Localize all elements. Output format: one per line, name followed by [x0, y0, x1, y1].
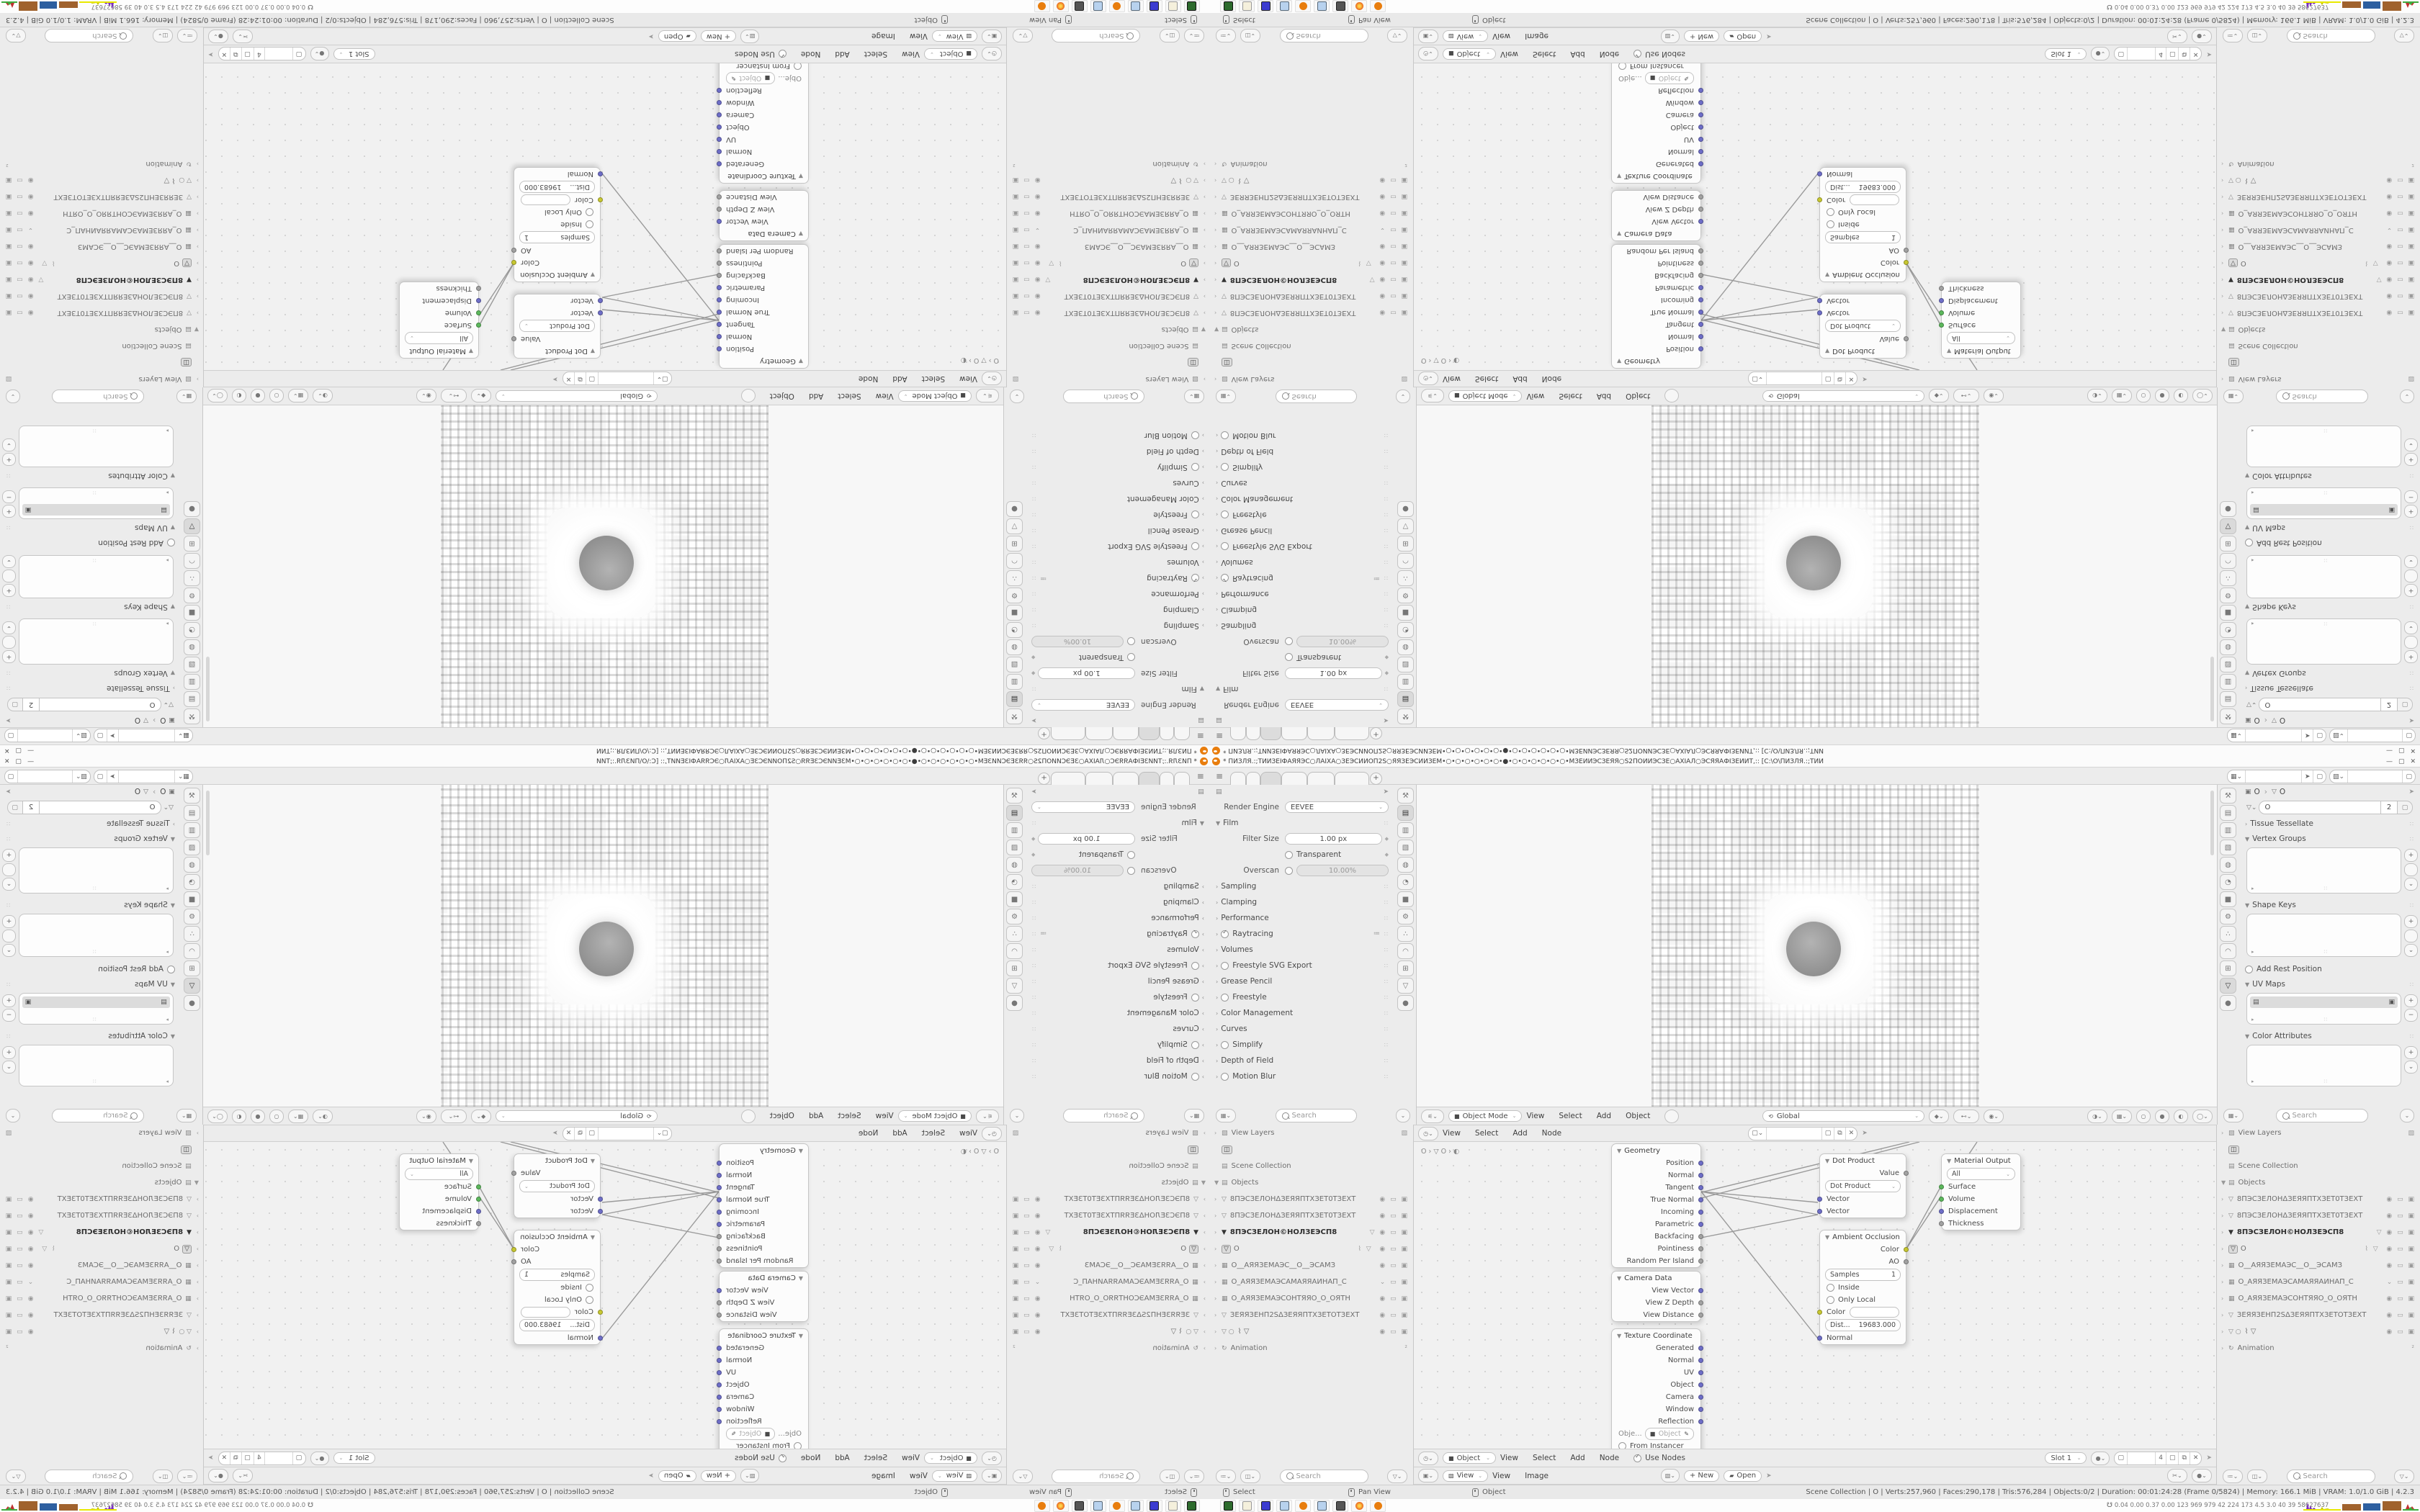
pin-icon[interactable]: ➤: [648, 33, 654, 40]
outliner-filter-dropdown[interactable]: ▽⌄: [1013, 30, 1033, 43]
section-depth-of-field[interactable]: ›Depth of Field∷: [1210, 444, 1394, 459]
properties-editor-type-button[interactable]: ▦⌄: [2223, 390, 2244, 403]
outliner-display-mode-button[interactable]: ≔⌄: [177, 30, 197, 43]
taskbar-monitor-icon[interactable]: [1332, 1500, 1348, 1512]
workspace-tab-6[interactable]: [1335, 726, 1369, 740]
menu-add[interactable]: Add: [835, 50, 849, 58]
socket-tangent[interactable]: Tangent: [720, 318, 808, 330]
socket-object[interactable]: Object: [1612, 121, 1700, 133]
tab-object-icon[interactable]: ■: [1006, 605, 1023, 621]
viewport-sidebar-tab[interactable]: [206, 791, 210, 855]
outliner-scene-collection-row[interactable]: ▤Scene Collection: [2217, 338, 2420, 354]
tab-particles-icon[interactable]: ∴: [2220, 926, 2236, 942]
outliner-objects-row[interactable]: ▼▤Objects: [0, 1174, 203, 1191]
outliner-item[interactable]: ›▽8ПЭСЗЕЛОНΔЗЕЯЯПТХЗЕТ0ТЗЕХТ◉ ▭ ▣: [0, 1207, 203, 1224]
tab-data-icon[interactable]: ▽: [184, 978, 200, 994]
inside-checkbox[interactable]: [1827, 1284, 1834, 1292]
socket-normal[interactable]: Normal: [1612, 145, 1700, 158]
shading-material-icon[interactable]: ◐: [232, 1110, 246, 1123]
minimize-button[interactable]: —: [27, 747, 34, 755]
workspace-tab-4[interactable]: [1281, 772, 1307, 786]
color-attribute-specials-button[interactable]: ⌄: [2, 438, 16, 451]
menu-view[interactable]: View: [1443, 374, 1461, 383]
close-button[interactable]: ✕: [2410, 758, 2416, 765]
overlays-icon[interactable]: ◑⌄: [2087, 1110, 2107, 1123]
outliner-objects-row[interactable]: ▼▤Objects: [1210, 321, 1413, 338]
material-users-count[interactable]: 4: [254, 1452, 264, 1464]
uv-map-item[interactable]: ▤ ▣: [2250, 504, 2398, 516]
viewport-sidebar-tab[interactable]: [2210, 657, 2214, 721]
scene-browse-icon[interactable]: ▦⌄: [174, 729, 192, 742]
section-raytracing[interactable]: ›Raytracing≔∷: [1210, 926, 1394, 942]
tab-scene-icon[interactable]: ◍: [184, 857, 200, 873]
vertex-group-add-button[interactable]: +: [2404, 650, 2418, 663]
snapping-icon[interactable]: ◆⌄: [471, 390, 491, 403]
outliner-scene-collection-row[interactable]: ▤Scene Collection: [1210, 338, 1413, 354]
tab-tool-icon[interactable]: ⚒: [2220, 788, 2236, 804]
overscan-field[interactable]: 10.00%: [1031, 865, 1124, 876]
mesh-browse-icon[interactable]: ▽⌄: [163, 701, 174, 708]
shader-node-editor[interactable]: O › ▽ O › ◐ ▼Geometry Position Normal Ta…: [204, 1142, 1006, 1449]
properties-search[interactable]: Search: [1276, 1109, 1357, 1122]
scene-selector[interactable]: ▦⌄ ➤ ▢: [94, 770, 193, 783]
tab-modifiers-icon[interactable]: ⚙: [1006, 909, 1023, 924]
properties-options-button[interactable]: ⌄: [1396, 390, 1410, 403]
material-id-block[interactable]: ▢ 4 ▢ ⧉ ✕: [2114, 48, 2202, 61]
only-local-checkbox[interactable]: [586, 1296, 593, 1304]
fake-user-shield-icon[interactable]: ▢: [586, 373, 599, 385]
taskbar-calculator2-icon[interactable]: [1314, 1, 1330, 13]
socket-thickness[interactable]: Thickness: [1942, 1218, 2020, 1230]
material-selector[interactable]: ▢⌄ ▢ ⧉ ✕: [1748, 372, 1857, 386]
socket-thickness[interactable]: Thickness: [400, 1218, 478, 1230]
color-attribute-add-button[interactable]: +: [2, 453, 16, 466]
app-menu-icon[interactable]: ≡: [1197, 731, 1204, 741]
material-selector[interactable]: ▢⌄ ▢ ⧉ ✕: [1748, 1127, 1857, 1140]
transparent-checkbox[interactable]: [1285, 851, 1293, 859]
maximize-button[interactable]: ▢: [2398, 758, 2405, 765]
editor-type-icon[interactable]: ◷⌄: [1418, 1127, 1438, 1140]
shape-key-specials-button[interactable]: ⌄: [2404, 555, 2418, 568]
socket-pointiness[interactable]: Pointiness: [720, 1243, 808, 1255]
tab-viewlayer-icon[interactable]: ▧: [1006, 840, 1023, 855]
outliner-item[interactable]: ›▽ЗЕЯЯЗЕНП2SΔЗЕЯЯПТХЗЕТОТЗЕХТ◉ ▭ ▣: [0, 1307, 203, 1323]
overlays-icon[interactable]: ◑⌄: [313, 390, 333, 403]
proportional-edit-icon[interactable]: ⊷⌄: [441, 1110, 467, 1123]
tab-scene-icon[interactable]: ◍: [184, 639, 200, 655]
transparent-checkbox[interactable]: [1127, 654, 1135, 662]
shader-node-editor[interactable]: O › ▽ O › ◐ ▼Geometry Position Normal Ta…: [1414, 1142, 2216, 1449]
unlink-icon[interactable]: ✕: [219, 48, 230, 60]
section-grease-pencil[interactable]: ›Grease Pencil∷: [1210, 523, 1394, 539]
socket-window[interactable]: Window: [1612, 1403, 1700, 1416]
outliner-display-mode-button[interactable]: ≔⌄: [1184, 30, 1204, 43]
panel-tissue-tessellate[interactable]: ›Tissue Tessellate∷: [2239, 680, 2420, 696]
outliner-filter-row[interactable]: ◫: [1210, 354, 1413, 371]
menu-image[interactable]: Image: [1525, 1472, 1549, 1480]
transform-orientation-select[interactable]: ⟲Global ⌄: [496, 390, 658, 402]
outliner-item[interactable]: ›▦O_АЯЯЗЕМАЭСАМАЯЯАИНАП_С⌄ ▭ ▣: [1210, 222, 1413, 238]
tab-output-icon[interactable]: ▥: [1006, 674, 1023, 690]
section-grease-pencil[interactable]: ›Grease Pencil∷: [1026, 973, 1210, 989]
freestyle-checkbox[interactable]: [1221, 511, 1229, 519]
socket-color-in[interactable]: Color: [514, 194, 600, 206]
properties-options-button[interactable]: ⌄: [2400, 1109, 2414, 1122]
tab-data-icon[interactable]: ▽: [1397, 518, 1414, 534]
tab-render-icon[interactable]: ▤: [2220, 691, 2236, 707]
tab-output-icon[interactable]: ▥: [2220, 822, 2236, 838]
tab-world-icon[interactable]: ◔: [1397, 622, 1414, 638]
from-instancer-checkbox[interactable]: [794, 63, 802, 70]
scene-copy-icon[interactable]: ▢: [2313, 729, 2326, 742]
socket-generated[interactable]: Generated: [1612, 1342, 1700, 1354]
outliner-item-active[interactable]: ›▼8ПЭСЗЕЛОН©НОЛЗЕЭСП8▽ ◉ ▭ ▣: [1210, 271, 1413, 288]
shading-wire-icon[interactable]: ○: [269, 390, 284, 403]
node-texture-coordinate[interactable]: ▼Texture Coordinate Generated Normal UV …: [719, 1328, 809, 1449]
tab-data-icon[interactable]: ▽: [2220, 978, 2236, 994]
properties-options-button[interactable]: ⌄: [1396, 1109, 1410, 1122]
outliner-item[interactable]: ›▦O__АЯЯЗЕМАЭС__О__ЭСАМЗ◉ ▭ ▣: [2217, 238, 2420, 255]
taskbar-floppy-icon[interactable]: [1258, 1500, 1273, 1512]
annotate-tool-icon[interactable]: ✂⌄: [233, 30, 253, 43]
scene-pin-icon[interactable]: ➤: [107, 770, 119, 783]
properties-options-button[interactable]: ⌄: [2400, 390, 2414, 403]
menu-select[interactable]: Select: [1475, 1129, 1498, 1138]
outliner-filter-dropdown[interactable]: ▽⌄: [1013, 1470, 1033, 1483]
socket-true-normal[interactable]: True Normal: [720, 1194, 808, 1206]
pin-icon[interactable]: ➤: [1031, 788, 1037, 796]
section-color-management[interactable]: ›Color Management∷: [1210, 491, 1394, 507]
scene-pin-icon[interactable]: ➤: [2302, 729, 2314, 742]
unlink-icon[interactable]: ✕: [1846, 373, 1857, 385]
properties-search[interactable]: Search: [2276, 390, 2368, 403]
outliner-item[interactable]: ›▽8ПЭСЗЕЛОНΔЗЕЯЯПТХЗЕТ0ТЗЕХТ◉ ▭ ▣: [2217, 1207, 2420, 1224]
menu-view[interactable]: View: [1500, 1454, 1518, 1462]
shader-context-select[interactable]: ■Object ⌄: [924, 1452, 977, 1464]
taskbar-calculator-icon[interactable]: [1128, 1500, 1144, 1512]
target-select[interactable]: All⌄: [1947, 1168, 2015, 1180]
viewport-sphere-object[interactable]: [1786, 922, 1841, 976]
panel-tissue-tessellate[interactable]: ›Tissue Tessellate∷: [0, 816, 181, 832]
socket-backfacing[interactable]: Backfacing: [1612, 1230, 1700, 1243]
node-geometry[interactable]: ▼Geometry Position Normal Tangent True N…: [719, 244, 809, 369]
close-button[interactable]: ✕: [4, 747, 10, 755]
viewport-3d[interactable]: ⚟⌄ ■Object Mode ⌄ View Select Add Object…: [203, 785, 1003, 1125]
workspace-tab-4[interactable]: [1113, 772, 1139, 786]
editor-type-icon[interactable]: ◷⌄: [982, 1127, 1002, 1140]
menu-node[interactable]: Node: [1600, 50, 1619, 58]
socket-view-z-depth[interactable]: View Z Depth: [720, 1297, 808, 1309]
color-attributes-list[interactable]: ▸∷: [2246, 426, 2401, 467]
object-picker-field[interactable]: ■Object✎: [1645, 1428, 1694, 1440]
tab-particles-icon[interactable]: ∴: [184, 570, 200, 586]
tab-world-icon[interactable]: ◔: [184, 874, 200, 890]
workspace-tab-2[interactable]: [1160, 726, 1174, 740]
section-simplify[interactable]: ›Simplify∷: [1026, 459, 1210, 475]
socket-incoming[interactable]: Incoming: [1612, 294, 1700, 306]
render-engine-select[interactable]: EEVEE⌄: [1285, 699, 1389, 711]
tab-constraints-icon[interactable]: ⊞: [184, 960, 200, 976]
section-sampling[interactable]: ›Sampling∷: [1210, 618, 1394, 634]
scene-copy-icon[interactable]: ▢: [94, 770, 107, 783]
pin-icon[interactable]: ➤: [2206, 50, 2212, 58]
socket-random-per-island[interactable]: Random Per Island: [1612, 1255, 1700, 1267]
socket-parametric[interactable]: Parametric: [1612, 282, 1700, 294]
add-workspace-button[interactable]: +: [1038, 727, 1050, 739]
tab-physics-icon[interactable]: ◠: [1397, 943, 1414, 959]
material-users-count[interactable]: 4: [2156, 1452, 2166, 1464]
render-engine-select[interactable]: EEVEE⌄: [1031, 801, 1135, 813]
vertex-group-specials-button[interactable]: ⌄: [2, 878, 16, 891]
tab-output-icon[interactable]: ▥: [1397, 674, 1414, 690]
workspace-tab-4[interactable]: [1113, 726, 1139, 740]
socket-view-vector[interactable]: View Vector: [720, 1284, 808, 1297]
taskbar-blender-icon[interactable]: [1109, 1500, 1125, 1512]
app-menu-icon[interactable]: ≡: [1197, 771, 1204, 781]
viewlayer-copy-icon[interactable]: ▢: [2403, 729, 2415, 742]
outliner-item[interactable]: ›▽ЗЕЯЯЗЕНП2SΔЗЕЯЯПТХЗЕТОТЗЕХТ◉ ▭ ▣: [0, 189, 203, 205]
freestyle-checkbox[interactable]: [1191, 994, 1199, 1002]
section-curves[interactable]: ›Curves∷: [1026, 1021, 1210, 1037]
taskbar-monitor-icon[interactable]: [1332, 1, 1348, 13]
vector-math-operation-select[interactable]: Dot Product⌄: [519, 320, 595, 332]
unlink-icon[interactable]: ✕: [563, 1128, 575, 1140]
socket-reflection[interactable]: Reflection: [720, 1416, 808, 1428]
outliner-item[interactable]: ›▦O_АЯЯЗЕМАЭСАМАЯЯАИНАП_С⌄ ▭ ▣: [1007, 1274, 1210, 1290]
node-texture-coordinate[interactable]: ▼Texture Coordinate Generated Normal UV …: [719, 63, 809, 184]
shader-context-select[interactable]: ■Object ⌄: [924, 48, 977, 60]
menu-image[interactable]: Image: [871, 1472, 895, 1480]
tab-object-icon[interactable]: ■: [2220, 605, 2236, 621]
fake-user-shield-icon[interactable]: ▢: [7, 698, 22, 711]
node-dot-product[interactable]: ▼Dot Product Value Dot Product⌄ Vector V…: [1819, 294, 1906, 359]
mesh-users-count[interactable]: 2: [2381, 801, 2398, 814]
socket-camera[interactable]: Camera: [1612, 1391, 1700, 1403]
node-camera-data[interactable]: ▼Camera Data View Vector View Z Depth Vi…: [1611, 1271, 1701, 1322]
socket-reflection[interactable]: Reflection: [1612, 1416, 1700, 1428]
section-raytracing[interactable]: ›Raytracing≔∷: [1026, 926, 1210, 942]
target-select[interactable]: All⌄: [1947, 332, 2015, 344]
material-name-field[interactable]: [264, 1452, 292, 1464]
overscan-field[interactable]: 10.00%: [1031, 636, 1124, 647]
scene-selector[interactable]: ▦⌄ ➤ ▢: [94, 729, 193, 742]
socket-uv[interactable]: UV: [720, 133, 808, 145]
color-attribute-add-button[interactable]: +: [2, 1046, 16, 1059]
copy-icon[interactable]: ⧉: [574, 1128, 585, 1140]
socket-position[interactable]: Position: [720, 343, 808, 355]
tab-material-icon[interactable]: ●: [1397, 995, 1414, 1011]
tab-particles-icon[interactable]: ∴: [1006, 570, 1023, 586]
tab-material-icon[interactable]: ●: [184, 995, 200, 1011]
socket-object[interactable]: Object: [1612, 1379, 1700, 1391]
outliner-item-active[interactable]: ›▼8ПЭСЗЕЛОН©НОЛЗЕЭСП8▽ ◉ ▭ ▣: [0, 271, 203, 288]
taskbar-notepad-icon[interactable]: [1165, 1, 1181, 13]
material-browse-icon[interactable]: ▢⌄: [653, 1128, 671, 1140]
inside-checkbox[interactable]: [586, 1284, 593, 1292]
tab-object-icon[interactable]: ■: [1397, 891, 1414, 907]
uv-maps-list[interactable]: ▤ ▣ ▸∷: [19, 487, 174, 519]
shape-key-blank-button[interactable]: [2, 930, 16, 942]
outliner-objects-row[interactable]: ▼▤Objects: [0, 321, 203, 338]
socket-view-distance[interactable]: View Distance: [1612, 191, 1700, 203]
shader-context-select[interactable]: ■Object ⌄: [1443, 48, 1496, 60]
section-motion-blur[interactable]: ›Motion Blur∷: [1026, 428, 1210, 444]
material-name-field[interactable]: [598, 373, 653, 385]
render-engine-select[interactable]: EEVEE⌄: [1031, 699, 1135, 711]
panel-vertex-groups[interactable]: ▼Vertex Groups∷: [0, 666, 181, 680]
menu-add[interactable]: Add: [1570, 50, 1585, 58]
menu-view[interactable]: View: [876, 1112, 894, 1120]
socket-vector-2[interactable]: Vector: [514, 294, 600, 307]
socket-reflection[interactable]: Reflection: [720, 84, 808, 96]
tab-physics-icon[interactable]: ◠: [2220, 943, 2236, 959]
from-instancer-checkbox[interactable]: [1618, 1442, 1626, 1449]
maximize-button[interactable]: ▢: [16, 758, 22, 765]
properties-search[interactable]: Search: [1276, 390, 1357, 403]
menu-select[interactable]: Select: [1559, 1112, 1582, 1120]
tab-constraints-icon[interactable]: ⊞: [1397, 960, 1414, 976]
socket-vector-1[interactable]: Vector: [514, 1193, 600, 1205]
taskbar-calculator-icon[interactable]: [1128, 1, 1144, 13]
shading-icon[interactable]: ●⌄: [208, 1469, 228, 1482]
tab-scene-icon[interactable]: ◍: [1006, 639, 1023, 655]
menu-image[interactable]: Image: [871, 32, 895, 41]
panel-vertex-groups[interactable]: ▼Vertex Groups∷: [2239, 666, 2420, 680]
outliner-animation-row[interactable]: ›↻Animation²: [1210, 1340, 1413, 1356]
maximize-button[interactable]: ▢: [16, 747, 22, 755]
outliner-item-selected[interactable]: ›▽O⌇ ▽ ◉ ▭ ▣: [0, 1241, 203, 1257]
taskbar-notepad-icon[interactable]: [1239, 1500, 1255, 1512]
properties-search[interactable]: Search: [2276, 1109, 2368, 1122]
menu-view[interactable]: View: [910, 32, 928, 41]
menu-select[interactable]: Select: [1533, 1454, 1556, 1462]
outliner-item[interactable]: ›▽8ПЭСЗЕЛОНΔЗЕЯЯПТХЗЕТ0ТЗЕХТ◉ ▭ ▣: [0, 1191, 203, 1207]
section-motion-blur[interactable]: ›Motion Blur∷: [1210, 1068, 1394, 1084]
viewlayer-name-field[interactable]: [2348, 729, 2403, 742]
scene-name-field[interactable]: [118, 770, 174, 783]
section-raytracing[interactable]: ›Raytracing≔∷: [1026, 570, 1210, 586]
tab-viewlayer-icon[interactable]: ▧: [1397, 657, 1414, 672]
menu-select[interactable]: Select: [864, 1454, 887, 1462]
tool-settings-icon[interactable]: [741, 390, 756, 403]
snapping-icon[interactable]: ◆⌄: [1929, 390, 1949, 403]
simplify-checkbox[interactable]: [1191, 1041, 1199, 1049]
annotate-tool-icon[interactable]: ✂⌄: [2167, 30, 2187, 43]
outliner-search[interactable]: Search: [1052, 30, 1141, 43]
section-volumes[interactable]: ›Volumes∷: [1026, 554, 1210, 570]
workspace-tab-2[interactable]: [1160, 772, 1174, 786]
section-grease-pencil[interactable]: ›Grease Pencil∷: [1026, 523, 1210, 539]
object-picker-field[interactable]: ■Object✎: [726, 1428, 775, 1440]
socket-ao-out[interactable]: AO: [1820, 244, 1906, 256]
scene-browse-icon[interactable]: ▦⌄: [2228, 729, 2246, 742]
section-motion-blur[interactable]: ›Motion Blur∷: [1026, 1068, 1210, 1084]
mode-select[interactable]: ■Object Mode ⌄: [898, 1110, 972, 1122]
only-local-checkbox[interactable]: [1827, 208, 1834, 216]
socket-true-normal[interactable]: True Normal: [1612, 1194, 1700, 1206]
properties-options-button[interactable]: ⌄: [1010, 1109, 1024, 1122]
section-color-management[interactable]: ›Color Management∷: [1210, 1005, 1394, 1021]
outliner-search[interactable]: Search: [1052, 1470, 1141, 1483]
socket-view-z-depth[interactable]: View Z Depth: [720, 203, 808, 215]
simplify-checkbox[interactable]: [1221, 1041, 1229, 1049]
menu-select[interactable]: Select: [838, 392, 861, 400]
maximize-button[interactable]: ▢: [2398, 747, 2405, 755]
socket-uv[interactable]: UV: [1612, 1367, 1700, 1379]
socket-generated[interactable]: Generated: [1612, 158, 1700, 170]
socket-volume[interactable]: Volume: [1942, 1193, 2020, 1205]
outliner-filter-row[interactable]: ◫: [0, 354, 203, 371]
image-browse-icon[interactable]: ▧⌄: [1661, 30, 1680, 43]
overscan-checkbox[interactable]: [1127, 867, 1135, 875]
material-id-block[interactable]: ▢ 4 ▢ ⧉ ✕: [218, 48, 306, 61]
render-engine-select[interactable]: EEVEE⌄: [1285, 801, 1389, 813]
image-new-button[interactable]: + New: [1684, 1470, 1719, 1482]
outliner-item[interactable]: ›▦O_АЯЯЗЕМАЭСОНТЯЯО_О_ОЯТН◉ ▭ ▣: [2217, 205, 2420, 222]
filter-icon[interactable]: ◫: [1222, 1146, 1232, 1154]
shading-solid-icon[interactable]: ●: [2155, 390, 2169, 403]
menu-select[interactable]: Select: [1533, 50, 1556, 58]
image-open-button[interactable]: ▰Open: [658, 31, 696, 42]
taskbar-console-icon[interactable]: [1220, 1500, 1236, 1512]
section-raytracing[interactable]: ›Raytracing≔∷: [1210, 570, 1394, 586]
section-clamping[interactable]: ›Clamping∷: [1210, 894, 1394, 910]
node-dot-product[interactable]: ▼Dot Product Value Dot Product⌄ Vector V…: [1819, 1153, 1906, 1218]
outliner-filter-button[interactable]: ◫⌄: [2247, 1470, 2267, 1483]
pin-icon[interactable]: ➤: [1383, 716, 1389, 724]
image-new-button[interactable]: + New: [701, 1470, 736, 1482]
mesh-browse-icon[interactable]: ▽⌄: [163, 804, 174, 811]
outliner-item[interactable]: ›▦O_АЯЯЗЕМАЭСАМАЯЯАИНАП_С⌄ ▭ ▣: [1007, 222, 1210, 238]
viewlayer-name-field[interactable]: [2348, 770, 2403, 783]
node-geometry[interactable]: ▼Geometry Position Normal Tangent True N…: [719, 1143, 809, 1268]
editor-type-icon[interactable]: ◷⌄: [982, 372, 1002, 386]
tab-particles-icon[interactable]: ∴: [1397, 926, 1414, 942]
tab-data-icon[interactable]: ▽: [1006, 518, 1023, 534]
outliner-item[interactable]: ›▦O_АЯЯЗЕМАЭСОНТЯЯО_О_ОЯТН◉ ▭ ▣: [1210, 205, 1413, 222]
socket-color-out[interactable]: Color: [514, 256, 600, 269]
editor-type-icon[interactable]: ◷⌄: [982, 48, 1002, 61]
node-camera-data[interactable]: ▼Camera Data View Vector View Z Depth Vi…: [1611, 190, 1701, 241]
annotate-tool-icon[interactable]: ✂⌄: [233, 1469, 253, 1482]
tab-scene-icon[interactable]: ◍: [2220, 857, 2236, 873]
properties-editor-type-button[interactable]: ▦⌄: [1184, 390, 1204, 403]
shading-solid-icon[interactable]: ●: [251, 1110, 265, 1123]
outliner-item[interactable]: ›▽8ПЭСЗЕЛОНΔЗЕЯЯПТХЗЕТ0ТЗЕХТ◉ ▭ ▣: [1210, 305, 1413, 321]
shading-solid-icon[interactable]: ●: [251, 390, 265, 403]
tab-modifiers-icon[interactable]: ⚙: [184, 588, 200, 603]
tab-physics-icon[interactable]: ◠: [1006, 943, 1023, 959]
outliner-filter-button[interactable]: ◫⌄: [1160, 1470, 1180, 1483]
outliner-view-layers-row[interactable]: ›▧ View Layers▧: [0, 371, 203, 387]
properties-search[interactable]: Search: [1064, 1109, 1145, 1122]
node-texture-coordinate[interactable]: ▼Texture Coordinate Generated Normal UV …: [1611, 1328, 1701, 1449]
tab-constraints-icon[interactable]: ⊞: [2220, 960, 2236, 976]
motion-blur-checkbox[interactable]: [1221, 1073, 1229, 1081]
viewlayer-copy-icon[interactable]: ▢: [5, 729, 17, 742]
vertex-group-add-button[interactable]: +: [2404, 849, 2418, 862]
panel-shape-keys[interactable]: ▼Shape Keys∷: [2239, 898, 2420, 912]
fake-user-shield-icon[interactable]: ▢: [7, 801, 22, 814]
tab-scene-icon[interactable]: ◍: [1397, 639, 1414, 655]
menu-view[interactable]: View: [910, 1472, 928, 1480]
uv-map-camera-icon[interactable]: ▣: [2388, 506, 2395, 513]
socket-volume[interactable]: Volume: [1942, 307, 2020, 319]
outliner-item[interactable]: ›▽ ○⌇ ▽◉ ▭ ▣: [0, 172, 203, 189]
menu-node[interactable]: Node: [801, 50, 820, 58]
socket-ao-out[interactable]: AO: [514, 244, 600, 256]
color-attribute-specials-button[interactable]: ⌄: [2404, 1061, 2418, 1074]
